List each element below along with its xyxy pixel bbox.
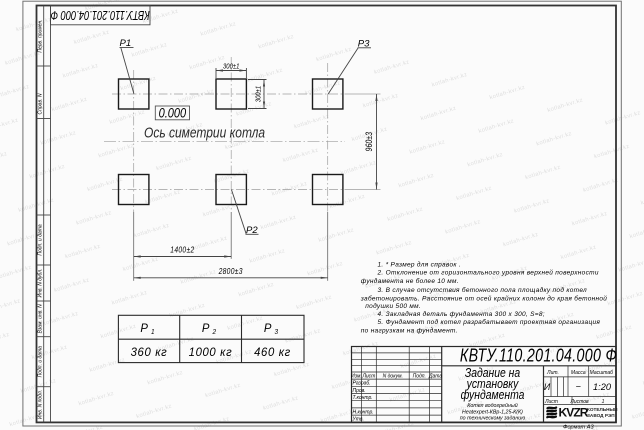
svg-text:Р 1: Р 1	[140, 321, 155, 337]
svg-text:kotlah-kvr.kz: kotlah-kvr.kz	[189, 55, 226, 72]
svg-text:kotlah-kvr.kz: kotlah-kvr.kz	[489, 85, 526, 102]
svg-text:Инв. N подл.: Инв. N подл.	[38, 390, 44, 419]
svg-text:Р2: Р2	[246, 225, 258, 236]
svg-text:kotlah-kvr.kz: kotlah-kvr.kz	[156, 156, 193, 173]
svg-text:1. * Размер для справок .: 1. * Размер для справок .	[378, 261, 461, 269]
svg-text:kotlah-kvr.kz: kotlah-kvr.kz	[571, 211, 608, 228]
svg-text:2800±3: 2800±3	[218, 266, 244, 276]
svg-text:3. В случае отсутствия бетонно: 3. В случае отсутствия бетонного пола пл…	[378, 286, 588, 294]
svg-text:kotlah-kvr.kz: kotlah-kvr.kz	[631, 404, 644, 421]
svg-text:КОТЕЛЬНЫЙ: КОТЕЛЬНЫЙ	[587, 405, 618, 412]
svg-text:kotlah-kvr.kz: kotlah-kvr.kz	[373, 59, 410, 76]
svg-text:kotlah-kvr.kz: kotlah-kvr.kz	[109, 109, 146, 126]
svg-text:kotlah-kvr.kz: kotlah-kvr.kz	[76, 210, 113, 227]
svg-text:kotlah-kvr.kz: kotlah-kvr.kz	[362, 93, 399, 110]
svg-text:kotlah-kvr.kz: kotlah-kvr.kz	[398, 173, 435, 190]
svg-text:kotlah-kvr.kz: kotlah-kvr.kz	[376, 240, 413, 257]
svg-text:Р3: Р3	[358, 38, 370, 49]
svg-text:kotlah-kvr.kz: kotlah-kvr.kz	[191, 236, 228, 253]
svg-text:1400±2: 1400±2	[170, 245, 195, 255]
svg-text:Изм.: Изм.	[351, 373, 362, 379]
svg-text:KVZR: KVZR	[559, 405, 589, 419]
svg-text:kotlah-kvr.kz: kotlah-kvr.kz	[262, 395, 299, 412]
svg-text:kotlah-kvr.kz: kotlah-kvr.kz	[594, 144, 631, 161]
svg-text:kotlah-kvr.kz: kotlah-kvr.kz	[629, 224, 644, 241]
svg-text:kotlah-kvr.kz: kotlah-kvr.kz	[340, 160, 377, 177]
svg-text:1000 кг: 1000 кг	[189, 345, 233, 360]
svg-text:kotlah-kvr.kz: kotlah-kvr.kz	[238, 282, 275, 299]
svg-text:kotlah-kvr.kz: kotlah-kvr.kz	[420, 106, 457, 123]
svg-text:КВТУ.110.201.04.000 Ф: КВТУ.110.201.04.000 Ф	[460, 346, 617, 366]
svg-text:kotlah-kvr.kz: kotlah-kvr.kz	[282, 147, 319, 164]
svg-text:kotlah-kvr.kz: kotlah-kvr.kz	[136, 404, 173, 421]
svg-text:kotlah-kvr.kz: kotlah-kvr.kz	[431, 72, 468, 89]
svg-text:kotlah-kvr.kz: kotlah-kvr.kz	[65, 244, 102, 261]
svg-text:kotlah-kvr.kz: kotlah-kvr.kz	[120, 76, 157, 93]
svg-text:Т.контр.: Т.контр.	[353, 395, 373, 401]
svg-text:Дата: Дата	[428, 373, 442, 379]
svg-text:Лист: Лист	[361, 373, 375, 379]
svg-text:Взам. инв. N: Взам. инв. N	[38, 304, 44, 334]
svg-text:Котел водогрейный: Котел водогрейный	[467, 402, 517, 409]
svg-text:Н.контр.: Н.контр.	[353, 410, 374, 416]
svg-text:kotlah-kvr.kz: kotlah-kvr.kz	[296, 295, 333, 312]
svg-text:kotlah-kvr.kz: kotlah-kvr.kz	[502, 232, 539, 249]
svg-text:kotlah-kvr.kz: kotlah-kvr.kz	[29, 164, 66, 181]
svg-text:kotlah-kvr.kz: kotlah-kvr.kz	[409, 139, 446, 156]
svg-text:kotlah-kvr.kz: kotlah-kvr.kz	[387, 206, 424, 223]
svg-text:Инв. N дубл.: Инв. N дубл.	[38, 269, 44, 298]
svg-text:kotlah-kvr.kz: kotlah-kvr.kz	[247, 68, 284, 85]
svg-text:kotlah-kvr.kz: kotlah-kvr.kz	[514, 198, 551, 215]
svg-text:подушки 500 мм.: подушки 500 мм.	[365, 302, 421, 310]
svg-text:1: 1	[602, 399, 605, 405]
svg-text:kotlah-kvr.kz: kotlah-kvr.kz	[0, 298, 21, 315]
svg-text:И: И	[544, 382, 551, 392]
svg-text:по техническому заданию: по техническому заданию	[460, 416, 525, 422]
svg-text:kotlah-kvr.kz: kotlah-kvr.kz	[560, 245, 597, 262]
svg-text:kotlah-kvr.kz: kotlah-kvr.kz	[547, 97, 584, 114]
svg-text:Формат А3: Формат А3	[563, 424, 594, 430]
svg-text:kotlah-kvr.kz: kotlah-kvr.kz	[67, 424, 104, 430]
svg-text:kotlah-kvr.kz: kotlah-kvr.kz	[0, 151, 8, 168]
svg-text:N докум.: N докум.	[383, 373, 403, 379]
svg-text:Р 3: Р 3	[264, 321, 279, 337]
svg-text:kotlah-kvr.kz: kotlah-kvr.kz	[618, 257, 644, 274]
svg-text:kotlah-kvr.kz: kotlah-kvr.kz	[318, 227, 355, 244]
svg-text:4. Закладная деталь фундамента: 4. Закладная деталь фундамента 300 х 300…	[378, 310, 545, 318]
svg-text:kotlah-kvr.kz: kotlah-kvr.kz	[596, 324, 633, 341]
svg-text:Перв. примен.: Перв. примен.	[38, 19, 44, 52]
svg-text:kotlah-kvr.kz: kotlah-kvr.kz	[178, 88, 215, 105]
svg-text:Масса: Масса	[571, 370, 586, 376]
svg-text:kotlah-kvr.kz: kotlah-kvr.kz	[89, 357, 126, 374]
svg-text:kotlah-kvr.kz: kotlah-kvr.kz	[329, 194, 366, 211]
svg-text:Лит.: Лит.	[546, 370, 559, 376]
svg-text:kotlah-kvr.kz: kotlah-kvr.kz	[73, 29, 110, 46]
svg-text:kotlah-kvr.kz: kotlah-kvr.kz	[145, 189, 182, 206]
svg-text:фундамента не более 10 мм.: фундамента не более 10 мм.	[361, 277, 459, 285]
svg-text:Справ. N: Справ. N	[38, 93, 44, 114]
svg-text:kotlah-kvr.kz: kotlah-kvr.kz	[147, 370, 184, 387]
svg-text:kotlah-kvr.kz: kotlah-kvr.kz	[536, 131, 573, 148]
svg-text:kotlah-kvr.kz: kotlah-kvr.kz	[200, 21, 237, 38]
svg-text:kotlah-kvr.kz: kotlah-kvr.kz	[445, 219, 482, 236]
svg-text:1:20: 1:20	[593, 382, 612, 392]
svg-text:kotlah-kvr.kz: kotlah-kvr.kz	[227, 315, 264, 332]
svg-text:960±3: 960±3	[364, 131, 374, 151]
svg-text:kotlah-kvr.kz: kotlah-kvr.kz	[607, 291, 644, 308]
svg-text:Подп.: Подп.	[413, 373, 426, 379]
svg-text:460 кг: 460 кг	[254, 345, 291, 360]
svg-text:kotlah-kvr.kz: kotlah-kvr.kz	[0, 332, 10, 349]
svg-text:kotlah-kvr.kz: kotlah-kvr.kz	[478, 118, 515, 135]
svg-text:kotlah-kvr.kz: kotlah-kvr.kz	[213, 168, 250, 185]
svg-text:kotlah-kvr.kz: kotlah-kvr.kz	[62, 63, 99, 80]
svg-text:–: –	[575, 382, 581, 391]
svg-text:kotlah-kvr.kz: kotlah-kvr.kz	[456, 186, 493, 203]
svg-text:kotlah-kvr.kz: kotlah-kvr.kz	[16, 17, 53, 34]
svg-text:ЗАВОД РЭП: ЗАВОД РЭП	[587, 413, 615, 418]
svg-text:kotlah-kvr.kz: kotlah-kvr.kz	[525, 165, 562, 182]
svg-text:Ось симетрии котла: Ось симетрии котла	[144, 124, 266, 141]
svg-text:забетонировать. Расстояние от: забетонировать. Расстояние от осей крайн…	[360, 294, 607, 302]
svg-text:360 кг: 360 кг	[131, 345, 168, 360]
svg-text:kotlah-kvr.kz: kotlah-kvr.kz	[40, 130, 77, 147]
svg-text:kotlah-kvr.kz: kotlah-kvr.kz	[640, 190, 644, 207]
svg-text:Подп. и дата: Подп. и дата	[38, 346, 44, 378]
svg-text:фундамента: фундамента	[461, 388, 525, 402]
svg-text:300±1: 300±1	[255, 86, 263, 103]
svg-text:kotlah-kvr.kz: kotlah-kvr.kz	[307, 261, 344, 278]
svg-text:Р1: Р1	[120, 38, 132, 49]
svg-text:kotlah-kvr.kz: kotlah-kvr.kz	[605, 110, 642, 127]
svg-text:kotlah-kvr.kz: kotlah-kvr.kz	[389, 387, 426, 404]
svg-text:kotlah-kvr.kz: kotlah-kvr.kz	[316, 47, 353, 64]
svg-text:kotlah-kvr.kz: kotlah-kvr.kz	[51, 97, 88, 114]
svg-text:kotlah-kvr.kz: kotlah-kvr.kz	[42, 311, 79, 328]
svg-text:kotlah-kvr.kz: kotlah-kvr.kz	[342, 341, 379, 358]
svg-text:Р 2: Р 2	[202, 321, 217, 337]
svg-text:kotlah-kvr.kz: kotlah-kvr.kz	[0, 265, 33, 282]
svg-text:kotlah-kvr.kz: kotlah-kvr.kz	[122, 256, 159, 273]
svg-text:Лист: Лист	[544, 399, 558, 405]
svg-text:2. Отклонение от горизонтально: 2. Отклонение от горизонтального уровня …	[377, 269, 599, 277]
svg-text:kotlah-kvr.kz: kotlah-kvr.kz	[0, 118, 19, 135]
svg-text:kotlah-kvr.kz: kotlah-kvr.kz	[582, 177, 619, 194]
svg-text:kotlah-kvr.kz: kotlah-kvr.kz	[53, 277, 90, 294]
svg-text:kotlah-kvr.kz: kotlah-kvr.kz	[131, 42, 168, 59]
svg-text:Пров.: Пров.	[353, 388, 366, 394]
svg-text:Разраб.: Разраб.	[353, 381, 371, 387]
svg-text:kotlah-kvr.kz: kotlah-kvr.kz	[169, 303, 206, 320]
svg-text:по нагрузкам на фундамент.: по нагрузкам на фундамент.	[361, 326, 458, 334]
svg-text:kotlah-kvr.kz: kotlah-kvr.kz	[98, 143, 135, 160]
svg-text:300±1: 300±1	[223, 63, 240, 71]
svg-text:kotlah-kvr.kz: kotlah-kvr.kz	[205, 383, 242, 400]
svg-text:Масштаб: Масштаб	[590, 370, 614, 376]
svg-text:kotlah-kvr.kz: kotlah-kvr.kz	[467, 152, 504, 169]
svg-text:kotlah-kvr.kz: kotlah-kvr.kz	[78, 391, 115, 408]
svg-text:КВТУ.110.201.04.000 Ф: КВТУ.110.201.04.000 Ф	[50, 8, 149, 22]
svg-text:kotlah-kvr.kz: kotlah-kvr.kz	[293, 114, 330, 131]
svg-text:kotlah-kvr.kz: kotlah-kvr.kz	[258, 34, 295, 51]
svg-text:kotlah-kvr.kz: kotlah-kvr.kz	[133, 223, 170, 240]
svg-text:Листов: Листов	[569, 399, 589, 405]
svg-text:kotlah-kvr.kz: kotlah-kvr.kz	[260, 215, 297, 232]
svg-text:Утв.: Утв.	[353, 417, 364, 423]
svg-text:0.000: 0.000	[159, 105, 187, 120]
svg-text:Heatexpert-КВр-1,25-К(К): Heatexpert-КВр-1,25-К(К)	[462, 410, 523, 416]
svg-text:Подп. и дата: Подп. и дата	[38, 224, 44, 256]
svg-text:kotlah-kvr.kz: kotlah-kvr.kz	[249, 248, 286, 265]
svg-text:kotlah-kvr.kz: kotlah-kvr.kz	[274, 362, 311, 379]
svg-text:kotlah-kvr.kz: kotlah-kvr.kz	[0, 84, 30, 101]
svg-text:kotlah-kvr.kz: kotlah-kvr.kz	[400, 354, 437, 371]
svg-text:5. Фундамент под котел разраба: 5. Фундамент под котел разрабатывает про…	[378, 318, 601, 326]
svg-text:kotlah-kvr.kz: kotlah-kvr.kz	[111, 290, 148, 307]
svg-text:kotlah-kvr.kz: kotlah-kvr.kz	[285, 328, 322, 345]
